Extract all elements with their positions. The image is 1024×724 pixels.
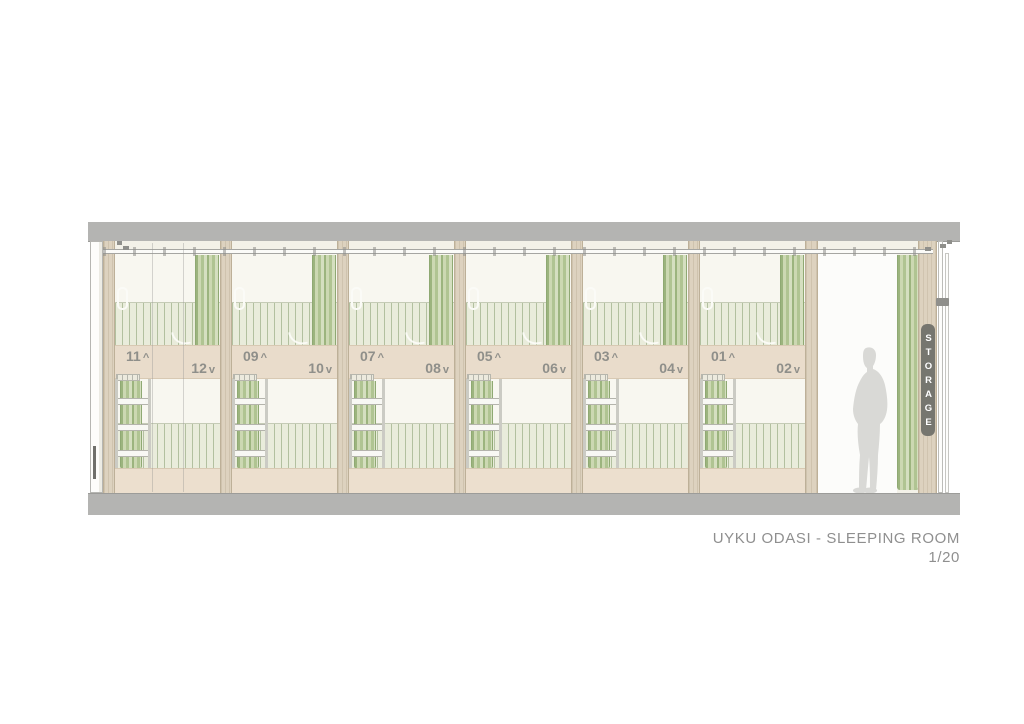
- bunk-bay: 03^ 04v: [571, 241, 688, 493]
- bunk-bay-row: 11^ 12v 09^ 10v: [103, 241, 805, 493]
- bracket-hardware: [123, 246, 129, 250]
- bunk-label-lower: 10v: [308, 360, 332, 376]
- bunk-number: 08: [425, 360, 441, 376]
- down-direction-icon: v: [209, 364, 215, 376]
- grab-handle-icon: [351, 287, 362, 310]
- wood-post: [220, 241, 232, 493]
- grab-handle-icon: [117, 287, 128, 310]
- wood-post: [454, 241, 466, 493]
- up-direction-icon: ^: [495, 352, 501, 364]
- storage-sign: STORAGE: [921, 324, 935, 436]
- bunk-number: 02: [776, 360, 792, 376]
- lower-bed-platform: [583, 468, 688, 493]
- dimension-line: [152, 243, 153, 492]
- track-bracket-hardware: [936, 298, 949, 306]
- grab-handle-icon: [234, 287, 245, 310]
- dimension-line: [183, 243, 184, 492]
- wood-post: [103, 241, 115, 493]
- bunk-label-lower: 08v: [425, 360, 449, 376]
- bunk-number: 05: [477, 348, 493, 364]
- drawing-title: UYKU ODASI - SLEEPING ROOM: [713, 529, 960, 548]
- up-direction-icon: ^: [378, 352, 384, 364]
- down-direction-icon: v: [560, 364, 566, 376]
- roof-slab: [88, 222, 960, 242]
- bunk-label-upper: 05^: [477, 348, 501, 364]
- bunk-bay: 05^ 06v: [454, 241, 571, 493]
- bunk-number: 04: [659, 360, 675, 376]
- lower-bed-platform: [466, 468, 571, 493]
- title-block: UYKU ODASI - SLEEPING ROOM 1/20: [713, 529, 960, 567]
- bunk-label-upper: 03^: [594, 348, 618, 364]
- upper-curtain: [546, 255, 570, 349]
- architectural-section-drawing: 11^ 12v 09^ 10v: [0, 0, 1024, 724]
- down-direction-icon: v: [443, 364, 449, 376]
- bunk-number: 12: [191, 360, 207, 376]
- upper-curtain: [780, 255, 804, 349]
- lower-bed-platform: [700, 468, 805, 493]
- lower-bed-platform: [115, 468, 220, 493]
- drawing-scale: 1/20: [713, 548, 960, 567]
- down-direction-icon: v: [677, 364, 683, 376]
- bracket-hardware: [117, 241, 122, 245]
- down-direction-icon: v: [326, 364, 332, 376]
- door-handle: [93, 446, 96, 479]
- bunk-bay: 01^ 02v: [688, 241, 805, 493]
- bunk-number: 07: [360, 348, 376, 364]
- bracket-hardware: [947, 240, 952, 244]
- human-figure: [845, 346, 893, 494]
- storage-curtain: [897, 255, 919, 490]
- end-wood-post: [805, 241, 818, 493]
- bunk-label-lower: 12v: [191, 360, 215, 376]
- sliding-door-track: [938, 241, 943, 493]
- wood-post: [688, 241, 700, 493]
- upper-curtain: [195, 255, 219, 349]
- bunk-number: 06: [542, 360, 558, 376]
- bunk-label-lower: 04v: [659, 360, 683, 376]
- bracket-hardware: [940, 244, 946, 248]
- wood-post: [337, 241, 349, 493]
- grab-handle-icon: [702, 287, 713, 310]
- up-direction-icon: ^: [729, 352, 735, 364]
- bunk-label-lower: 06v: [542, 360, 566, 376]
- up-direction-icon: ^: [261, 352, 267, 364]
- bunk-number: 10: [308, 360, 324, 376]
- upper-curtain: [312, 255, 336, 349]
- up-direction-icon: ^: [612, 352, 618, 364]
- bunk-label-upper: 01^: [711, 348, 735, 364]
- bracket-hardware: [925, 247, 931, 251]
- bunk-bay: 07^ 08v: [337, 241, 454, 493]
- curtain-rail-clips: [103, 247, 933, 256]
- upper-curtain: [429, 255, 453, 349]
- down-direction-icon: v: [794, 364, 800, 376]
- sliding-door-track: [945, 253, 949, 493]
- bunk-number: 01: [711, 348, 727, 364]
- wood-post: [571, 241, 583, 493]
- floor-slab: [88, 493, 960, 515]
- bunk-bay: 11^ 12v: [103, 241, 220, 493]
- bunk-label-upper: 11^: [126, 348, 149, 364]
- bunk-bay: 09^ 10v: [220, 241, 337, 493]
- grab-handle-icon: [585, 287, 596, 310]
- left-wall: [90, 241, 103, 493]
- upper-curtain: [663, 255, 687, 349]
- lower-bed-platform: [232, 468, 337, 493]
- bunk-label-lower: 02v: [776, 360, 800, 376]
- lower-bed-platform: [349, 468, 454, 493]
- grab-handle-icon: [468, 287, 479, 310]
- bunk-number: 03: [594, 348, 610, 364]
- bunk-label-upper: 09^: [243, 348, 267, 364]
- bunk-number: 09: [243, 348, 259, 364]
- bunk-number: 11: [126, 348, 141, 364]
- up-direction-icon: ^: [143, 352, 149, 364]
- bunk-label-upper: 07^: [360, 348, 384, 364]
